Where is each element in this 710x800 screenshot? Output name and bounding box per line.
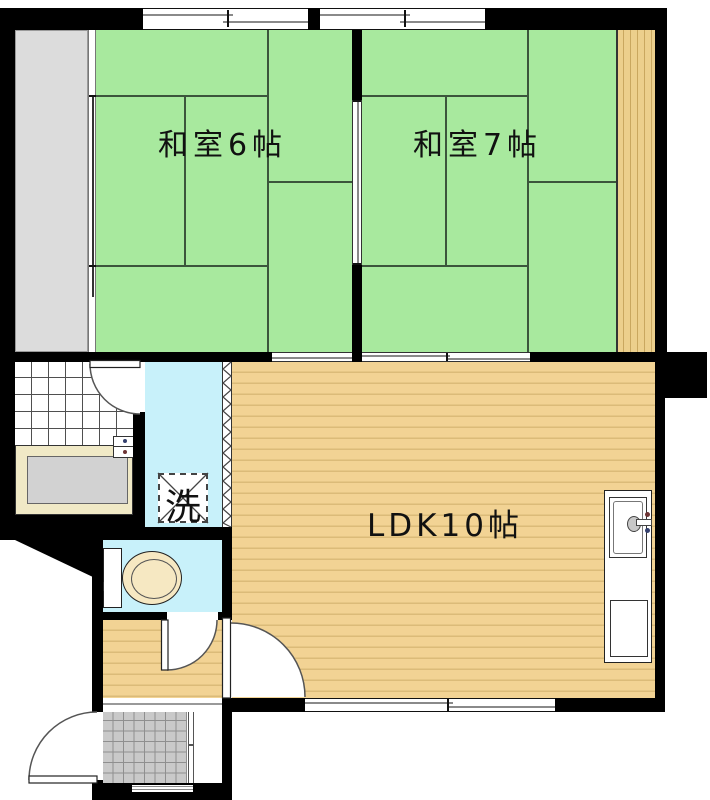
- front-door-swing: [29, 712, 97, 780]
- room-label-washitsu7: 和室7帖: [365, 120, 590, 164]
- toilet-door-swing: [167, 620, 217, 670]
- bathroom-door-swing: [90, 364, 140, 414]
- floor-plan-canvas: 和室6帖 和室7帖 LDK10帖 洗: [0, 0, 710, 800]
- ldk-door-panel: [223, 618, 231, 698]
- toilet-door-panel: [162, 620, 169, 670]
- room-label-ldk: LDK10帖: [330, 500, 560, 545]
- ldk-door-swing: [231, 623, 305, 697]
- bathroom-door-panel: [90, 361, 140, 368]
- accordion-zigzag: [223, 362, 231, 527]
- front-door-panel: [29, 776, 97, 783]
- doors-overlay: [0, 0, 710, 800]
- room-label-laundry: 洗: [158, 478, 208, 530]
- room-label-washitsu6: 和室6帖: [110, 120, 335, 164]
